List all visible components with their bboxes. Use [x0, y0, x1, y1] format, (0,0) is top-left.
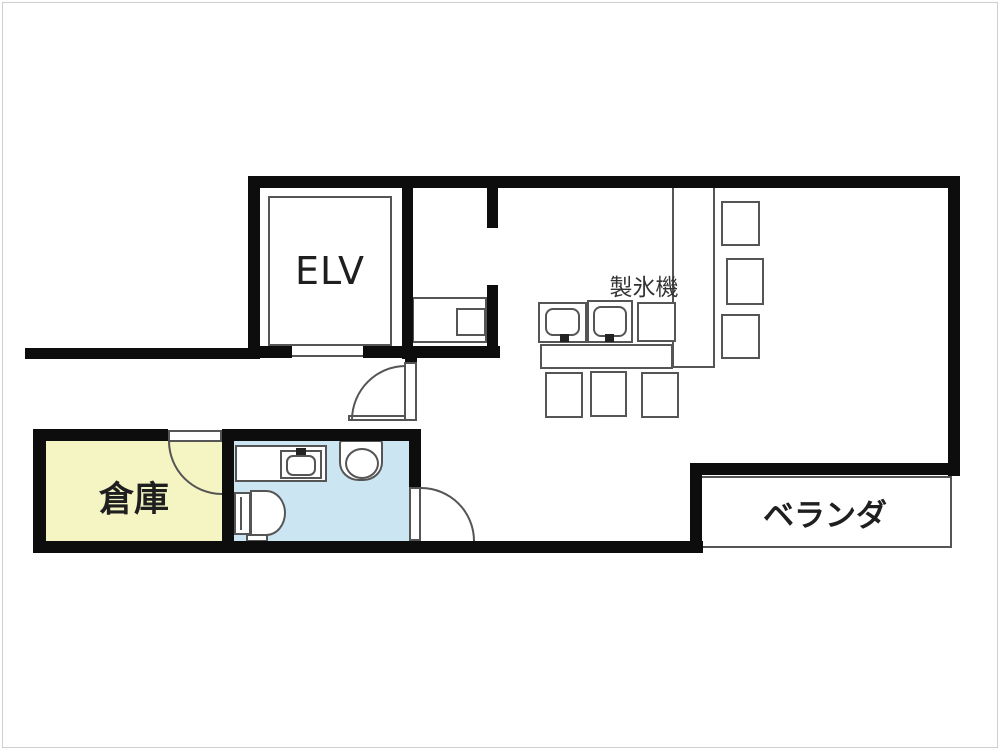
wall-corridor-stub-upper	[487, 186, 498, 228]
wall-bathroom-right	[409, 429, 421, 487]
wall-storage-left	[33, 429, 46, 553]
ice-maker-label: 製氷機	[606, 272, 682, 298]
elevator-label: ELV	[268, 196, 392, 346]
wall-bottom	[33, 541, 703, 553]
wall-right	[948, 176, 960, 476]
seat-square	[721, 314, 760, 359]
kitchen-sink-basin-icon	[545, 308, 580, 336]
wall-veranda-top	[690, 463, 960, 475]
wall-elevator-bottom-left	[248, 346, 292, 358]
sink-tap-icon	[605, 334, 614, 342]
wall-storage-top	[33, 429, 168, 441]
toilet-tank-icon	[234, 492, 251, 535]
vanity-sink-basin-icon	[286, 455, 316, 476]
toilet-tank-line	[240, 497, 242, 530]
storage-label: 倉庫	[46, 451, 222, 542]
kitchen-sink-basin-icon	[593, 306, 627, 337]
wall-top	[248, 176, 960, 188]
sink-tap-icon	[560, 334, 569, 342]
seat-square	[545, 372, 583, 418]
corridor-counter-box	[456, 308, 486, 336]
bar-counter-horizontal	[540, 344, 673, 369]
sink-tap-icon	[296, 448, 306, 455]
wall-elevator-bottom-right	[363, 346, 500, 358]
seat-square	[721, 201, 760, 246]
seat-square	[641, 372, 679, 418]
seat-square	[726, 258, 764, 305]
image-border	[2, 2, 998, 748]
wall-bathroom-top	[222, 429, 421, 441]
bathroom-door-leaf	[409, 487, 421, 541]
wall-elevator-left	[248, 176, 260, 359]
floor-plan: ELV 製氷機 ベランダ 倉庫	[0, 0, 1000, 750]
wall-storage-bathroom-divider	[222, 429, 234, 553]
wall-west-wing	[25, 348, 260, 359]
wall-corridor-stub-lower	[487, 285, 498, 358]
wall-elevator-right	[402, 176, 413, 359]
seat-square	[590, 371, 627, 417]
wash-basin-bowl-icon	[345, 448, 379, 479]
ice-maker-icon	[637, 302, 676, 342]
veranda-label: ベランダ	[698, 476, 952, 548]
